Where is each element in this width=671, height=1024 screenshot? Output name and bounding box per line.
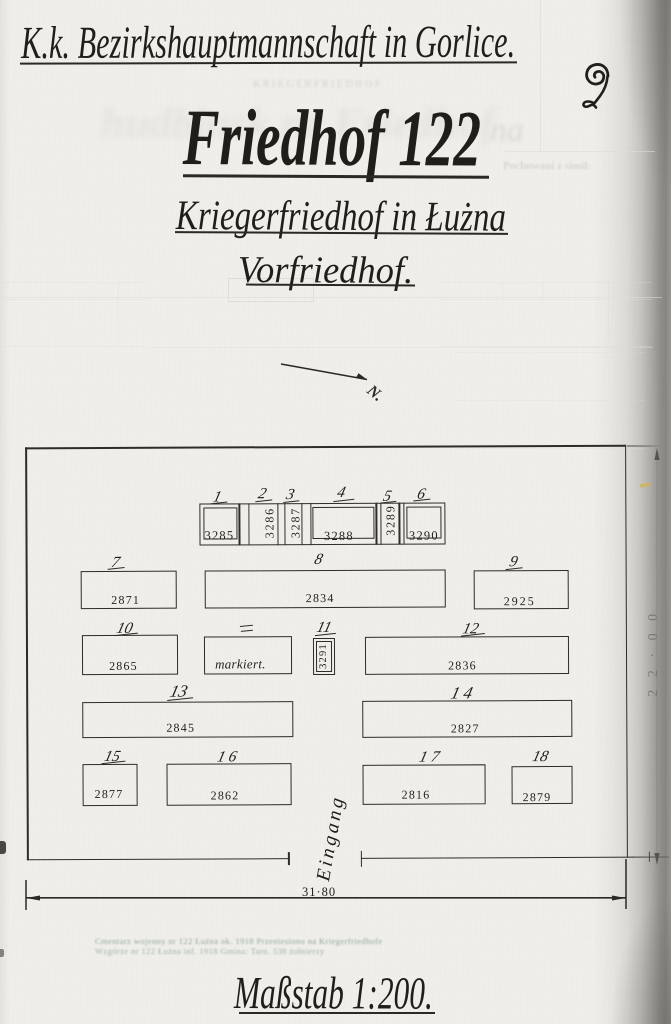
svg-text:31·80: 31·80 [302, 885, 336, 899]
svg-text:22·00: 22·00 [646, 601, 661, 696]
